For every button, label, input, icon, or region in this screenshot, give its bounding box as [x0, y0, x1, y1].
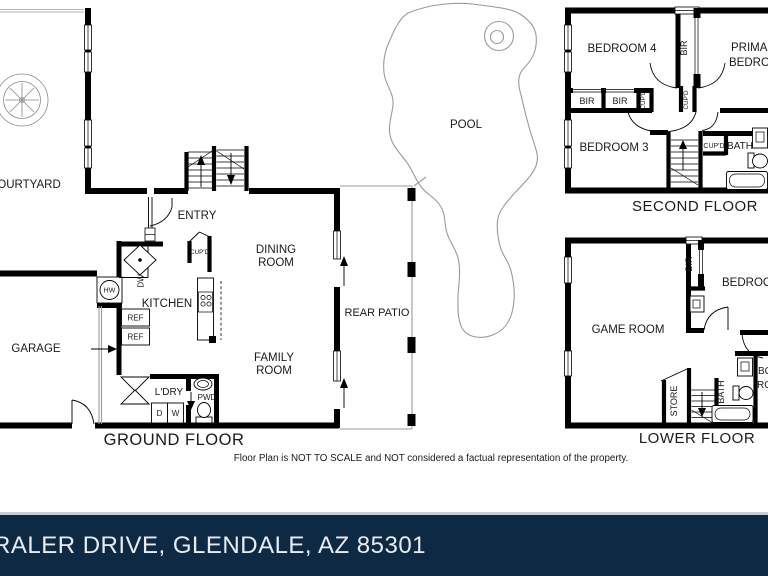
entry-door	[150, 198, 172, 226]
lower-bir-sliding-door	[698, 240, 704, 288]
label-primary-1: PRIMARY	[731, 42, 768, 54]
label-box-1: BOX	[758, 366, 768, 377]
second-stairs	[671, 140, 698, 188]
spa-icon	[485, 22, 514, 51]
label-store: STORE	[669, 386, 679, 417]
ground-floor-plan: HW DW REF REF CUP'D	[0, 8, 426, 449]
label-lower-bir: BIR	[684, 256, 694, 272]
address-banner: RALER DRIVE, GLENDALE, AZ 85301	[0, 515, 768, 576]
label-bir-2: BIR	[612, 96, 628, 106]
label-dining-2: ROOM	[258, 257, 294, 269]
kitchen-island	[198, 278, 222, 343]
label-bir-1: BIR	[579, 96, 595, 106]
hot-water-unit: HW	[97, 277, 122, 303]
label-powder: PWD	[198, 393, 217, 402]
svg-text:CUP'D: CUP'D	[190, 249, 209, 256]
svg-text:W: W	[172, 409, 180, 418]
pool-shape: POOL	[384, 3, 538, 337]
label-courtyard: COURTYARD	[0, 179, 61, 191]
label-garage: GARAGE	[11, 343, 61, 355]
label-dining-1: DINING	[256, 244, 296, 256]
floor-plan-image: HW DW REF REF CUP'D	[0, 0, 768, 514]
lower-stairs	[692, 390, 715, 424]
label-game-room: GAME ROOM	[592, 324, 665, 336]
svg-text:REF: REF	[128, 314, 144, 323]
fridge-2: REF	[122, 328, 150, 345]
lower-floor-plan: GAME ROOM BEDROOM BIR STORE BATH BOX ROO…	[565, 237, 768, 447]
label-cupd-3: CUP'D	[703, 143, 724, 150]
label-bedroom4: BEDROOM 4	[587, 43, 657, 55]
second-floor-title: SECOND FLOOR	[632, 198, 758, 215]
label-cupd-1: CUP'D	[640, 90, 647, 109]
label-bir-corridor: BIR	[679, 40, 689, 56]
fridge-1: REF	[122, 309, 150, 326]
label-laundry: L'DRY	[155, 387, 184, 398]
second-floor-plan: BEDROOM 4 BEDROOM 3 PRIMARY BEDROOM BIR …	[565, 7, 768, 215]
lower-windows	[565, 237, 703, 376]
ground-floor-title: GROUND FLOOR	[104, 431, 245, 449]
label-box-2: ROOM	[757, 380, 768, 391]
svg-text:REF: REF	[128, 333, 144, 342]
label-primary-2: BEDROOM	[729, 57, 768, 69]
label-pool: POOL	[450, 119, 483, 131]
label-rear-patio: REAR PATIO	[345, 307, 410, 319]
washer-box: W	[168, 403, 184, 423]
patio-door-arrows	[340, 256, 348, 408]
garage-passage	[91, 306, 117, 424]
label-family-2: ROOM	[256, 365, 292, 377]
bir-sliding-door	[694, 8, 701, 88]
label-family-1: FAMILY	[254, 352, 294, 364]
label-kitchen: KITCHEN	[142, 298, 192, 310]
dw-label: DW	[137, 274, 146, 288]
garage-door	[72, 400, 94, 424]
tree-icon	[0, 74, 48, 126]
svg-text:D: D	[157, 409, 163, 418]
pantry-cupboard: CUP'D	[189, 232, 210, 256]
dryer-box: D	[152, 403, 168, 423]
second-interior-walls	[565, 8, 768, 191]
label-bedroom3: BEDROOM 3	[579, 142, 648, 154]
courtyard-fence	[0, 10, 84, 13]
rear-patio-structure	[340, 177, 426, 429]
label-entry: ENTRY	[178, 210, 217, 222]
label-lower-bath: BATH	[716, 380, 726, 403]
label-lower-bedroom: BEDROOM	[722, 277, 768, 289]
second-bath-fixtures	[727, 128, 768, 190]
lower-vanity-nook	[690, 296, 704, 312]
laundry-bifold-door	[121, 377, 149, 404]
disclaimer-text: Floor Plan is NOT TO SCALE and NOT consi…	[234, 453, 628, 464]
label-second-bath: BATH	[727, 141, 753, 152]
kitchen-sink-icon	[119, 245, 156, 278]
label-cupd-2: CUP'D	[683, 90, 690, 109]
lower-floor-title: LOWER FLOOR	[639, 430, 755, 447]
hw-label: HW	[104, 288, 116, 295]
address-text: RALER DRIVE, GLENDALE, AZ 85301	[0, 532, 426, 560]
